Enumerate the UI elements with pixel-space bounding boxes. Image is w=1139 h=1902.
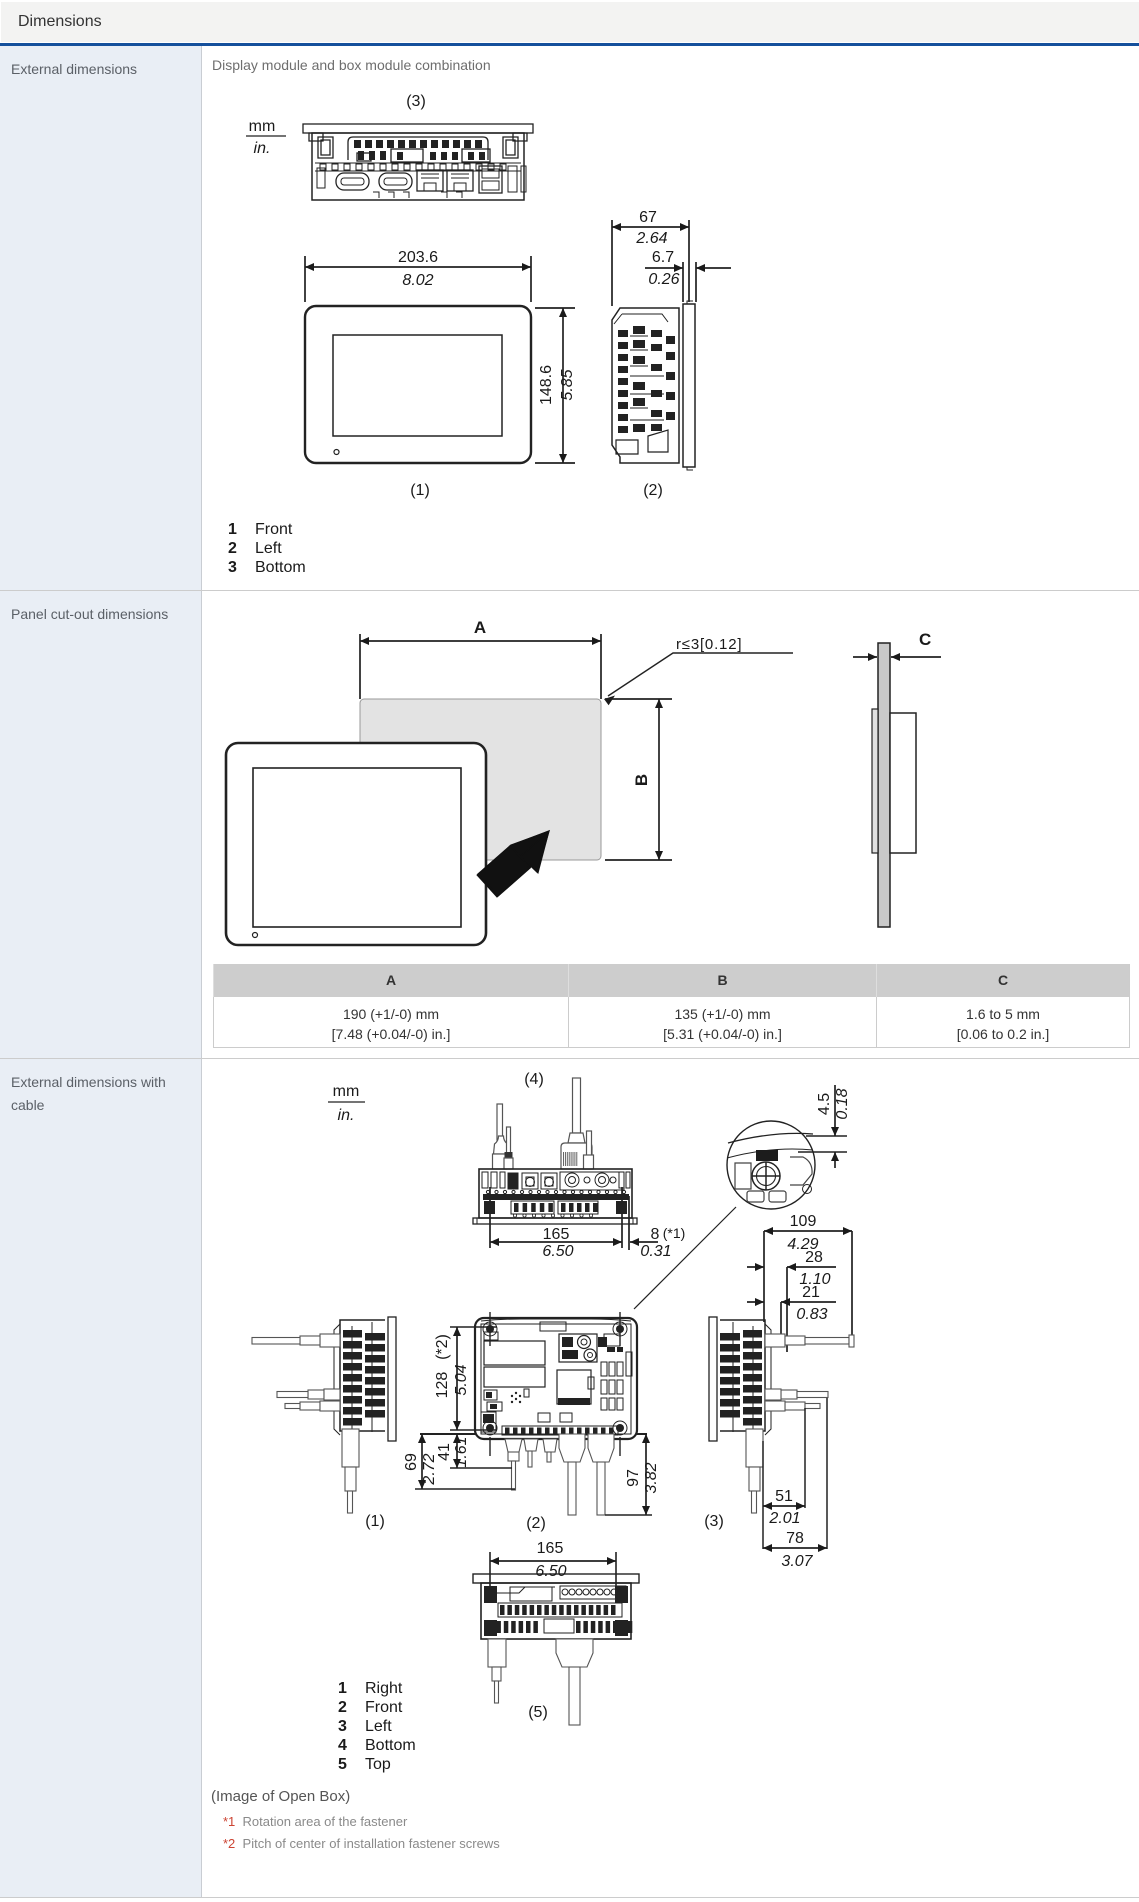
svg-text:6.50: 6.50 [542, 1243, 573, 1260]
svg-text:69: 69 [403, 1453, 420, 1471]
svg-text:78: 78 [786, 1530, 804, 1547]
svg-text:128: 128 [434, 1372, 451, 1399]
svg-text:2.64: 2.64 [635, 230, 667, 247]
svg-text:4.5: 4.5 [816, 1093, 833, 1115]
svg-text:41: 41 [436, 1443, 453, 1461]
svg-text:165: 165 [537, 1540, 564, 1557]
svg-text:B: B [632, 774, 651, 786]
svg-text:21: 21 [802, 1284, 820, 1301]
svg-text:203.6: 203.6 [398, 249, 438, 266]
svg-text:A: A [474, 618, 486, 637]
svg-text:8: 8 [651, 1226, 660, 1243]
svg-text:1.61: 1.61 [453, 1436, 470, 1467]
svg-text:0.18: 0.18 [834, 1088, 851, 1119]
svg-text:2.01: 2.01 [768, 1510, 800, 1527]
svg-text:mm: mm [333, 1083, 360, 1100]
svg-text:(1): (1) [410, 482, 430, 499]
svg-text:in.: in. [254, 140, 271, 157]
svg-text:(*1): (*1) [663, 1225, 686, 1241]
svg-text:148.6: 148.6 [538, 365, 555, 405]
svg-text:mm: mm [249, 118, 276, 135]
svg-text:97: 97 [625, 1469, 642, 1487]
svg-text:51: 51 [775, 1488, 793, 1505]
svg-text:(4): (4) [524, 1071, 544, 1088]
svg-text:5.85: 5.85 [559, 369, 576, 400]
svg-text:165: 165 [543, 1226, 570, 1243]
svg-text:(1): (1) [365, 1513, 385, 1530]
svg-text:0.26: 0.26 [648, 271, 679, 288]
svg-text:6.50: 6.50 [535, 1563, 566, 1580]
svg-text:28: 28 [805, 1249, 823, 1266]
svg-text:(*2): (*2) [434, 1334, 451, 1360]
svg-text:(2): (2) [526, 1515, 546, 1532]
svg-text:0.31: 0.31 [640, 1243, 671, 1260]
svg-text:8.02: 8.02 [402, 272, 433, 289]
svg-text:(2): (2) [643, 482, 663, 499]
svg-text:6.7: 6.7 [652, 249, 674, 266]
svg-text:3.07: 3.07 [781, 1553, 813, 1570]
svg-text:(5): (5) [528, 1704, 548, 1721]
svg-text:0.83: 0.83 [796, 1306, 827, 1323]
svg-text:5.04: 5.04 [453, 1364, 470, 1395]
svg-text:C: C [919, 630, 931, 649]
svg-text:3.82: 3.82 [643, 1462, 660, 1493]
svg-text:67: 67 [639, 209, 657, 226]
svg-text:(3): (3) [406, 93, 426, 110]
svg-text:in.: in. [338, 1107, 355, 1124]
svg-text:r≤3[0.12]: r≤3[0.12] [676, 636, 742, 653]
svg-text:(3): (3) [704, 1513, 724, 1530]
svg-text:109: 109 [790, 1213, 817, 1230]
